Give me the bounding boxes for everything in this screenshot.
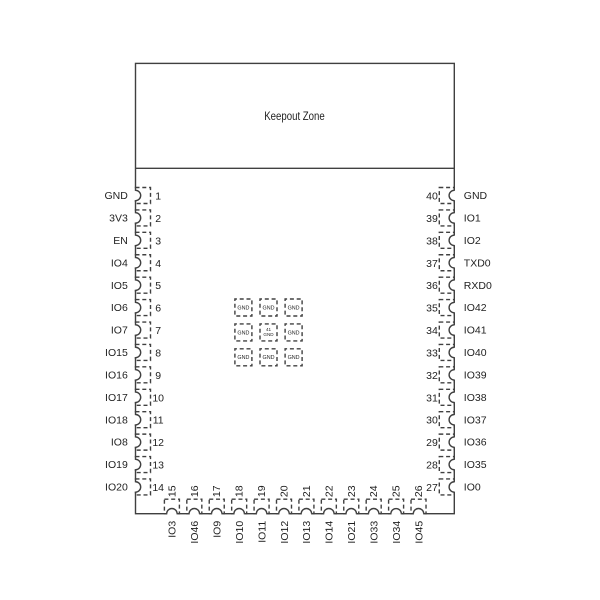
svg-text:16: 16 (189, 485, 201, 497)
svg-text:IO37: IO37 (464, 414, 487, 426)
svg-text:EN: EN (113, 235, 128, 247)
svg-text:IO10: IO10 (234, 521, 246, 544)
svg-text:10: 10 (152, 392, 164, 404)
svg-text:GND: GND (237, 330, 249, 336)
svg-text:IO4: IO4 (111, 257, 128, 269)
svg-text:IO5: IO5 (111, 280, 128, 292)
svg-text:33: 33 (426, 347, 438, 359)
svg-text:IO8: IO8 (111, 437, 128, 449)
svg-text:37: 37 (426, 258, 438, 270)
svg-text:IO9: IO9 (212, 521, 224, 538)
svg-text:17: 17 (211, 485, 223, 497)
svg-text:IO40: IO40 (464, 347, 487, 359)
svg-text:IO38: IO38 (464, 392, 487, 404)
svg-text:IO17: IO17 (105, 392, 128, 404)
svg-text:IO3: IO3 (167, 521, 179, 538)
svg-text:IO39: IO39 (464, 369, 487, 381)
svg-text:GND: GND (237, 305, 249, 311)
svg-text:29: 29 (426, 437, 438, 449)
svg-text:15: 15 (166, 485, 178, 497)
svg-text:26: 26 (413, 485, 425, 497)
svg-text:GND: GND (288, 330, 300, 336)
svg-text:7: 7 (155, 325, 161, 337)
svg-text:27: 27 (426, 482, 438, 494)
svg-text:GND: GND (263, 355, 275, 361)
svg-text:28: 28 (426, 460, 438, 472)
svg-text:IO36: IO36 (464, 437, 487, 449)
svg-text:IO42: IO42 (464, 302, 487, 314)
svg-text:5: 5 (155, 280, 161, 292)
svg-text:IO15: IO15 (105, 347, 128, 359)
svg-text:GND: GND (263, 332, 274, 337)
svg-text:RXD0: RXD0 (464, 280, 492, 292)
svg-text:40: 40 (426, 191, 438, 203)
svg-text:IO33: IO33 (368, 521, 380, 544)
svg-text:3V3: 3V3 (109, 213, 128, 225)
svg-text:IO18: IO18 (105, 414, 128, 426)
svg-text:39: 39 (426, 213, 438, 225)
svg-text:24: 24 (368, 485, 380, 497)
svg-text:23: 23 (346, 485, 358, 497)
svg-text:GND: GND (464, 190, 488, 202)
svg-text:14: 14 (152, 482, 164, 494)
svg-text:25: 25 (391, 485, 403, 497)
svg-text:13: 13 (152, 460, 164, 472)
svg-text:18: 18 (234, 485, 246, 497)
svg-text:IO14: IO14 (324, 521, 336, 544)
svg-text:IO46: IO46 (189, 521, 201, 544)
svg-text:32: 32 (426, 370, 438, 382)
svg-text:1: 1 (155, 191, 161, 203)
svg-text:Keepout Zone: Keepout Zone (264, 111, 325, 123)
svg-text:35: 35 (426, 303, 438, 315)
svg-text:IO21: IO21 (346, 521, 358, 544)
svg-text:GND: GND (104, 190, 128, 202)
svg-text:GND: GND (237, 355, 249, 361)
svg-text:34: 34 (426, 325, 438, 337)
svg-text:IO20: IO20 (105, 482, 128, 494)
svg-text:30: 30 (426, 415, 438, 427)
svg-text:GND: GND (288, 355, 300, 361)
svg-text:GND: GND (263, 305, 275, 311)
svg-text:31: 31 (426, 392, 438, 404)
svg-text:IO34: IO34 (391, 521, 403, 544)
svg-text:IO19: IO19 (105, 459, 128, 471)
svg-text:IO11: IO11 (256, 521, 268, 543)
svg-text:6: 6 (155, 303, 161, 315)
svg-text:36: 36 (426, 280, 438, 292)
svg-text:IO6: IO6 (111, 302, 128, 314)
svg-text:IO45: IO45 (413, 521, 425, 544)
svg-text:8: 8 (155, 347, 161, 359)
svg-text:IO16: IO16 (105, 369, 128, 381)
svg-text:21: 21 (301, 485, 313, 497)
svg-text:11: 11 (153, 415, 164, 427)
svg-text:4: 4 (155, 258, 161, 270)
svg-text:22: 22 (323, 485, 335, 497)
svg-text:GND: GND (288, 305, 300, 311)
svg-text:3: 3 (155, 235, 161, 247)
svg-text:IO7: IO7 (111, 325, 128, 337)
svg-text:IO2: IO2 (464, 235, 481, 247)
svg-text:9: 9 (155, 370, 161, 382)
svg-text:20: 20 (279, 485, 291, 497)
svg-text:19: 19 (256, 485, 268, 497)
svg-text:IO35: IO35 (464, 459, 487, 471)
svg-text:IO0: IO0 (464, 482, 481, 494)
svg-text:TXD0: TXD0 (464, 257, 491, 269)
svg-text:12: 12 (152, 437, 164, 449)
svg-text:2: 2 (155, 213, 161, 225)
svg-text:IO41: IO41 (464, 325, 487, 337)
svg-text:IO13: IO13 (301, 521, 313, 544)
svg-text:IO12: IO12 (279, 521, 291, 544)
svg-text:IO1: IO1 (464, 213, 481, 225)
svg-text:38: 38 (426, 235, 438, 247)
